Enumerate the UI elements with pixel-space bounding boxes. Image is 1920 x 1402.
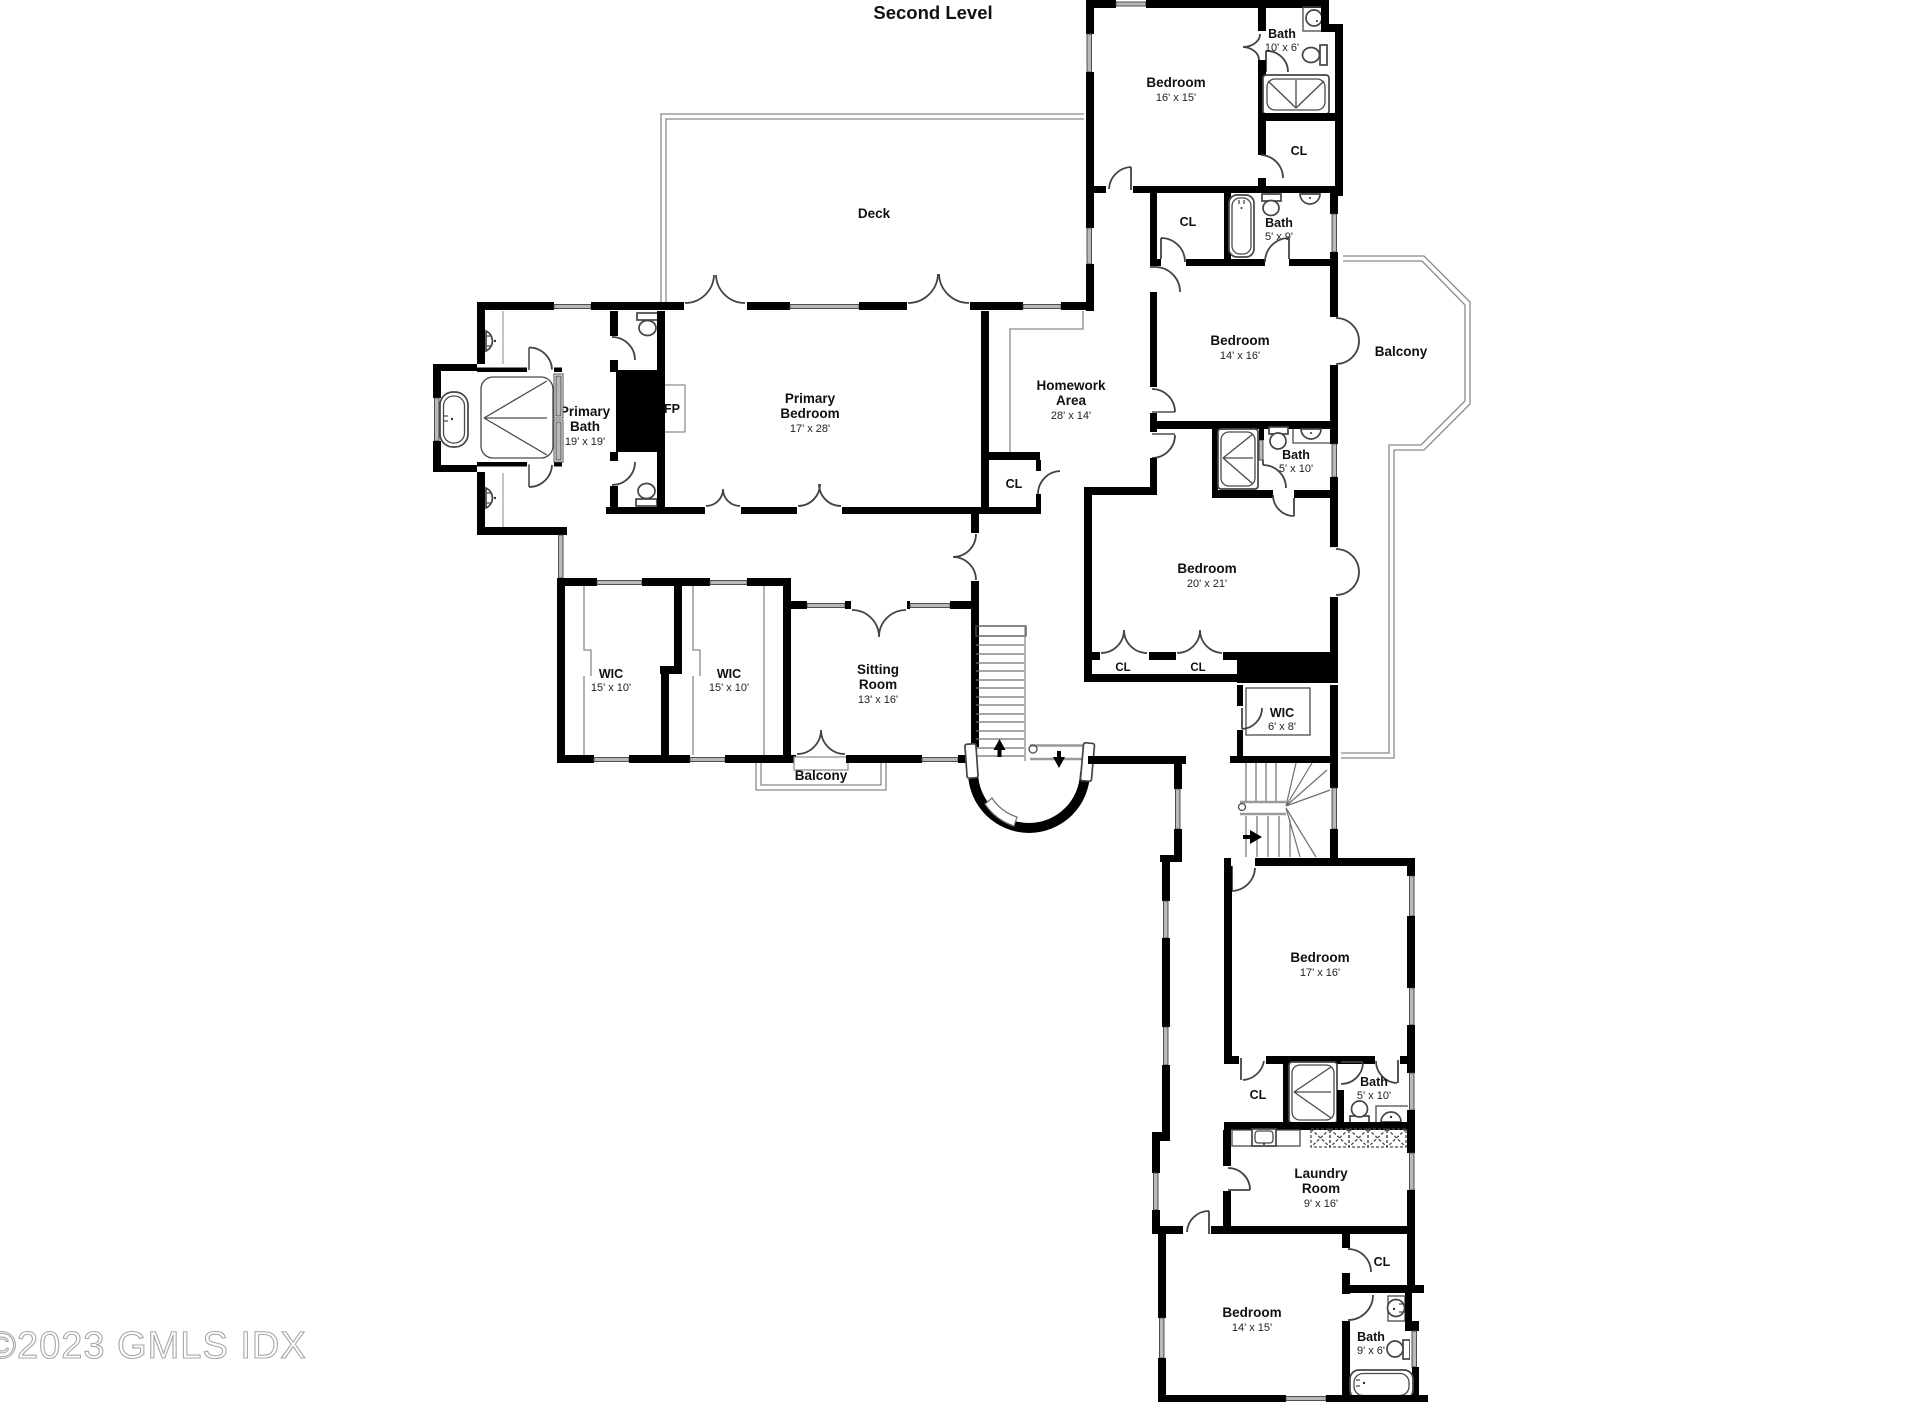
svg-text:Bath: Bath [1357,1330,1385,1344]
svg-text:13' x 16': 13' x 16' [858,694,898,706]
svg-text:16' x 15': 16' x 15' [1156,92,1196,104]
svg-text:28' x 14': 28' x 14' [1051,410,1091,422]
svg-text:Sitting: Sitting [857,662,899,677]
svg-text:FP: FP [664,402,680,416]
svg-text:Bath: Bath [1268,27,1296,41]
svg-text:WIC: WIC [717,667,741,681]
svg-text:Second Level: Second Level [873,2,992,23]
svg-text:Bedroom: Bedroom [1222,1305,1281,1320]
svg-text:Laundry: Laundry [1294,1166,1348,1181]
svg-text:5' x 10': 5' x 10' [1357,1090,1391,1102]
svg-text:Bedroom: Bedroom [1146,75,1205,90]
svg-text:9' x 16': 9' x 16' [1304,1198,1338,1210]
svg-text:5' x 10': 5' x 10' [1279,463,1313,475]
svg-text:Homework: Homework [1036,378,1106,393]
svg-text:Primary: Primary [560,404,611,419]
svg-text:17' x 28': 17' x 28' [790,423,830,435]
svg-text:Bedroom: Bedroom [1177,561,1236,576]
svg-text:15' x 10': 15' x 10' [591,682,631,694]
svg-text:Room: Room [859,677,897,692]
svg-text:19' x 19': 19' x 19' [565,436,605,448]
svg-text:CL: CL [1250,1088,1267,1102]
svg-text:Room: Room [1302,1181,1340,1196]
svg-text:9' x 6': 9' x 6' [1357,1345,1385,1357]
svg-text:17' x 16': 17' x 16' [1300,967,1340,979]
svg-text:CL: CL [1190,662,1205,674]
svg-text:15' x 10': 15' x 10' [709,682,749,694]
svg-text:Bath: Bath [1360,1075,1388,1089]
svg-text:CL: CL [1006,477,1023,491]
svg-text:Primary: Primary [785,391,836,406]
svg-text:CL: CL [1291,144,1308,158]
svg-text:Bedroom: Bedroom [780,406,839,421]
svg-text:14' x 15': 14' x 15' [1232,1322,1272,1334]
svg-text:CL: CL [1374,1255,1391,1269]
svg-text:6' x 8': 6' x 8' [1268,721,1296,733]
svg-text:Deck: Deck [858,206,891,221]
svg-text:Area: Area [1056,393,1087,408]
svg-text:CL: CL [1180,215,1197,229]
svg-text:WIC: WIC [1270,706,1294,720]
svg-text:CL: CL [1115,662,1130,674]
svg-text:WIC: WIC [599,667,623,681]
svg-text:Balcony: Balcony [1375,344,1428,359]
svg-text:Bedroom: Bedroom [1210,333,1269,348]
svg-text:20' x 21': 20' x 21' [1187,578,1227,590]
svg-text:Balcony: Balcony [795,768,848,783]
svg-text:Bath: Bath [570,419,600,434]
svg-text:Bath: Bath [1265,216,1293,230]
svg-text:10' x 6': 10' x 6' [1265,42,1299,54]
svg-text:©2023 GMLS IDX: ©2023 GMLS IDX [0,1325,307,1367]
svg-text:14' x 16': 14' x 16' [1220,350,1260,362]
svg-text:Bath: Bath [1282,448,1310,462]
svg-text:Bedroom: Bedroom [1290,950,1349,965]
